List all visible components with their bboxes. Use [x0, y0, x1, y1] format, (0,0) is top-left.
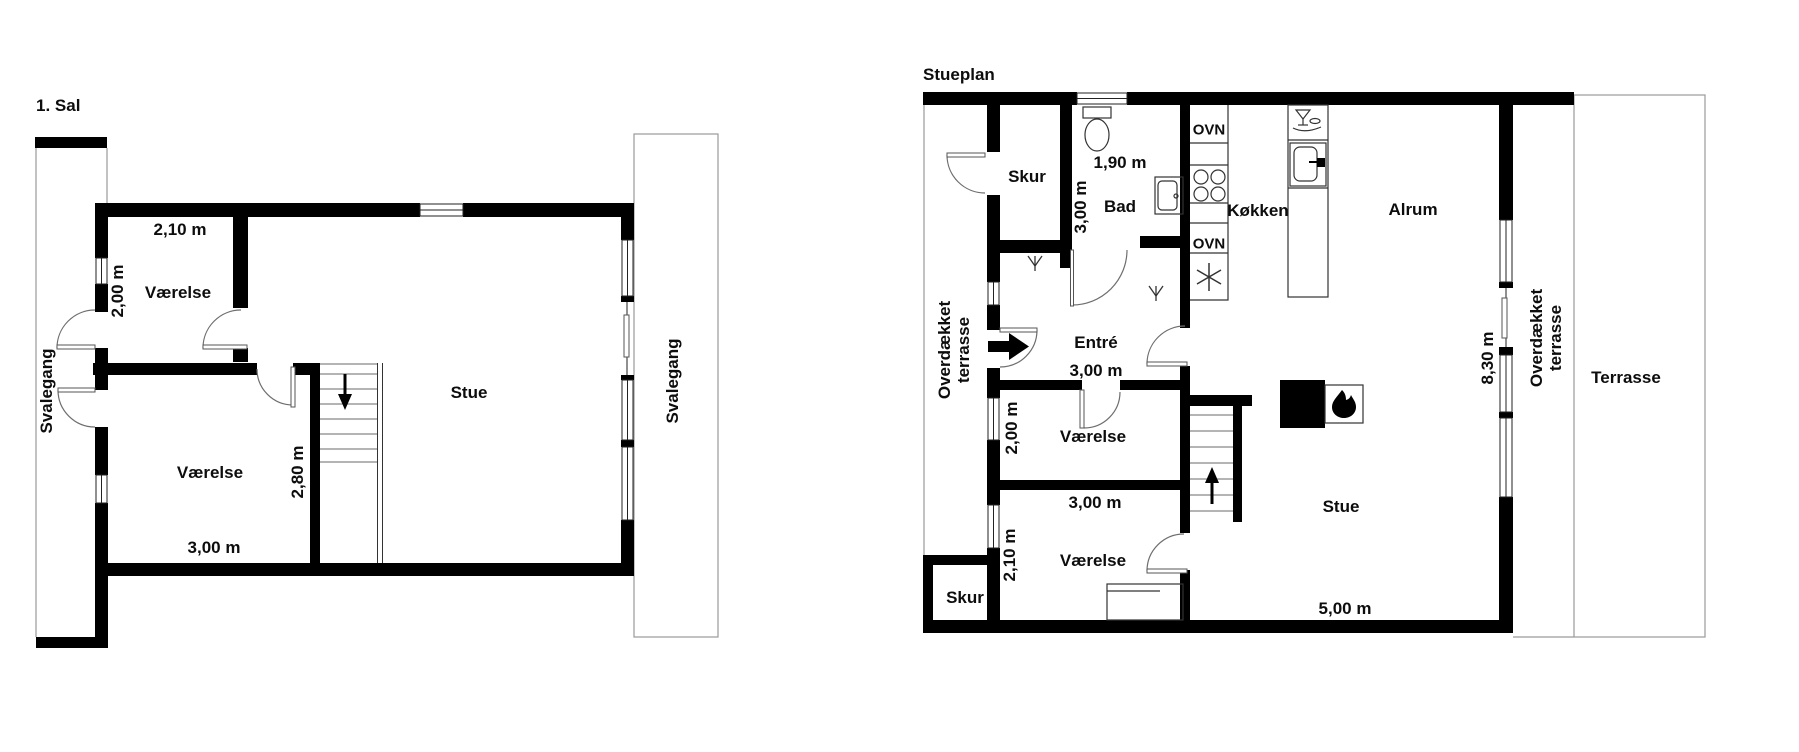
glassware-icon — [1293, 110, 1321, 131]
room-mid-width-label: 3,00 m — [1069, 493, 1122, 512]
room-bottom-label: Værelse — [1060, 551, 1126, 570]
room-top-label: Værelse — [145, 283, 211, 302]
staircase-up — [1190, 415, 1233, 511]
bad-label: Bad — [1104, 197, 1136, 216]
ground-floor-title: Stueplan — [923, 65, 995, 84]
terrasse-label: Terrasse — [1591, 368, 1661, 387]
covered-terrace-left-label-line2: terrasse — [954, 317, 973, 383]
room-mid-label: Værelse — [1060, 427, 1126, 446]
entre-label: Entré — [1074, 333, 1117, 352]
room-bottom-depth-label: 2,80 m — [288, 446, 307, 499]
stue-ground-label: Stue — [1323, 497, 1360, 516]
oven-bottom-label: OVN — [1193, 235, 1226, 252]
kitchen-island — [1288, 105, 1328, 297]
covered-terrace-right-label-line1: Overdækket — [1527, 289, 1546, 388]
room-top-depth-label: 2,00 m — [108, 265, 127, 318]
house-depth-label: 8,30 m — [1478, 332, 1497, 385]
svalegang-left-label: Svalegang — [37, 348, 56, 433]
covered-terrace-left-label-line1: Overdækket — [935, 301, 954, 400]
covered-terrace-right-label-line2: terrasse — [1546, 305, 1565, 371]
drain-icon — [1028, 256, 1042, 271]
kokken-label: Køkken — [1227, 201, 1288, 220]
ground-floor-plan: Stueplan Skur 1,90 m Bad 3,00 m OVN OVN … — [923, 65, 1705, 637]
entry-arrow-icon — [988, 333, 1029, 360]
fireplace-icon — [1280, 380, 1363, 428]
first-floor-plan: 1. Sal 2,10 m 2,00 m Værelse Svalegang S… — [35, 96, 718, 648]
svalegang-right-label: Svalegang — [663, 338, 682, 423]
alrum-label: Alrum — [1388, 200, 1437, 219]
room-mid-depth-label: 2,00 m — [1002, 402, 1021, 455]
entre-width-label: 3,00 m — [1070, 361, 1123, 380]
floorplan-page: 1. Sal 2,10 m 2,00 m Værelse Svalegang S… — [0, 0, 1799, 752]
flame-icon — [1332, 390, 1356, 418]
floor-plans-svg: 1. Sal 2,10 m 2,00 m Værelse Svalegang S… — [0, 0, 1799, 752]
staircase-down — [320, 363, 383, 563]
oven-top-label: OVN — [1193, 121, 1226, 138]
stairs-up-arrow-icon — [1205, 467, 1219, 504]
stairs-down-arrow-icon — [338, 374, 352, 410]
skur-bottom-label: Skur — [946, 588, 984, 607]
room-bottom-width-label: 3,00 m — [188, 538, 241, 557]
bad-width-label: 1,90 m — [1094, 153, 1147, 172]
room-bottom-depth-label: 2,10 m — [1000, 529, 1019, 582]
kitchen-sink-icon — [1290, 143, 1326, 186]
room-top-width-label: 2,10 m — [154, 220, 207, 239]
drain-icon — [1149, 286, 1163, 301]
freezer-icon — [1197, 263, 1221, 291]
wardrobe — [1107, 584, 1183, 620]
hob-icon — [1194, 170, 1225, 201]
first-floor-title: 1. Sal — [36, 96, 80, 115]
toilet-icon — [1083, 107, 1111, 151]
stue-width-label: 5,00 m — [1319, 599, 1372, 618]
bad-depth-label: 3,00 m — [1071, 181, 1090, 234]
bathroom-sink-icon — [1155, 177, 1183, 214]
stue-first-label: Stue — [451, 383, 488, 402]
walls — [93, 203, 634, 648]
room-bottom-label: Værelse — [177, 463, 243, 482]
skur-top-label: Skur — [1008, 167, 1046, 186]
